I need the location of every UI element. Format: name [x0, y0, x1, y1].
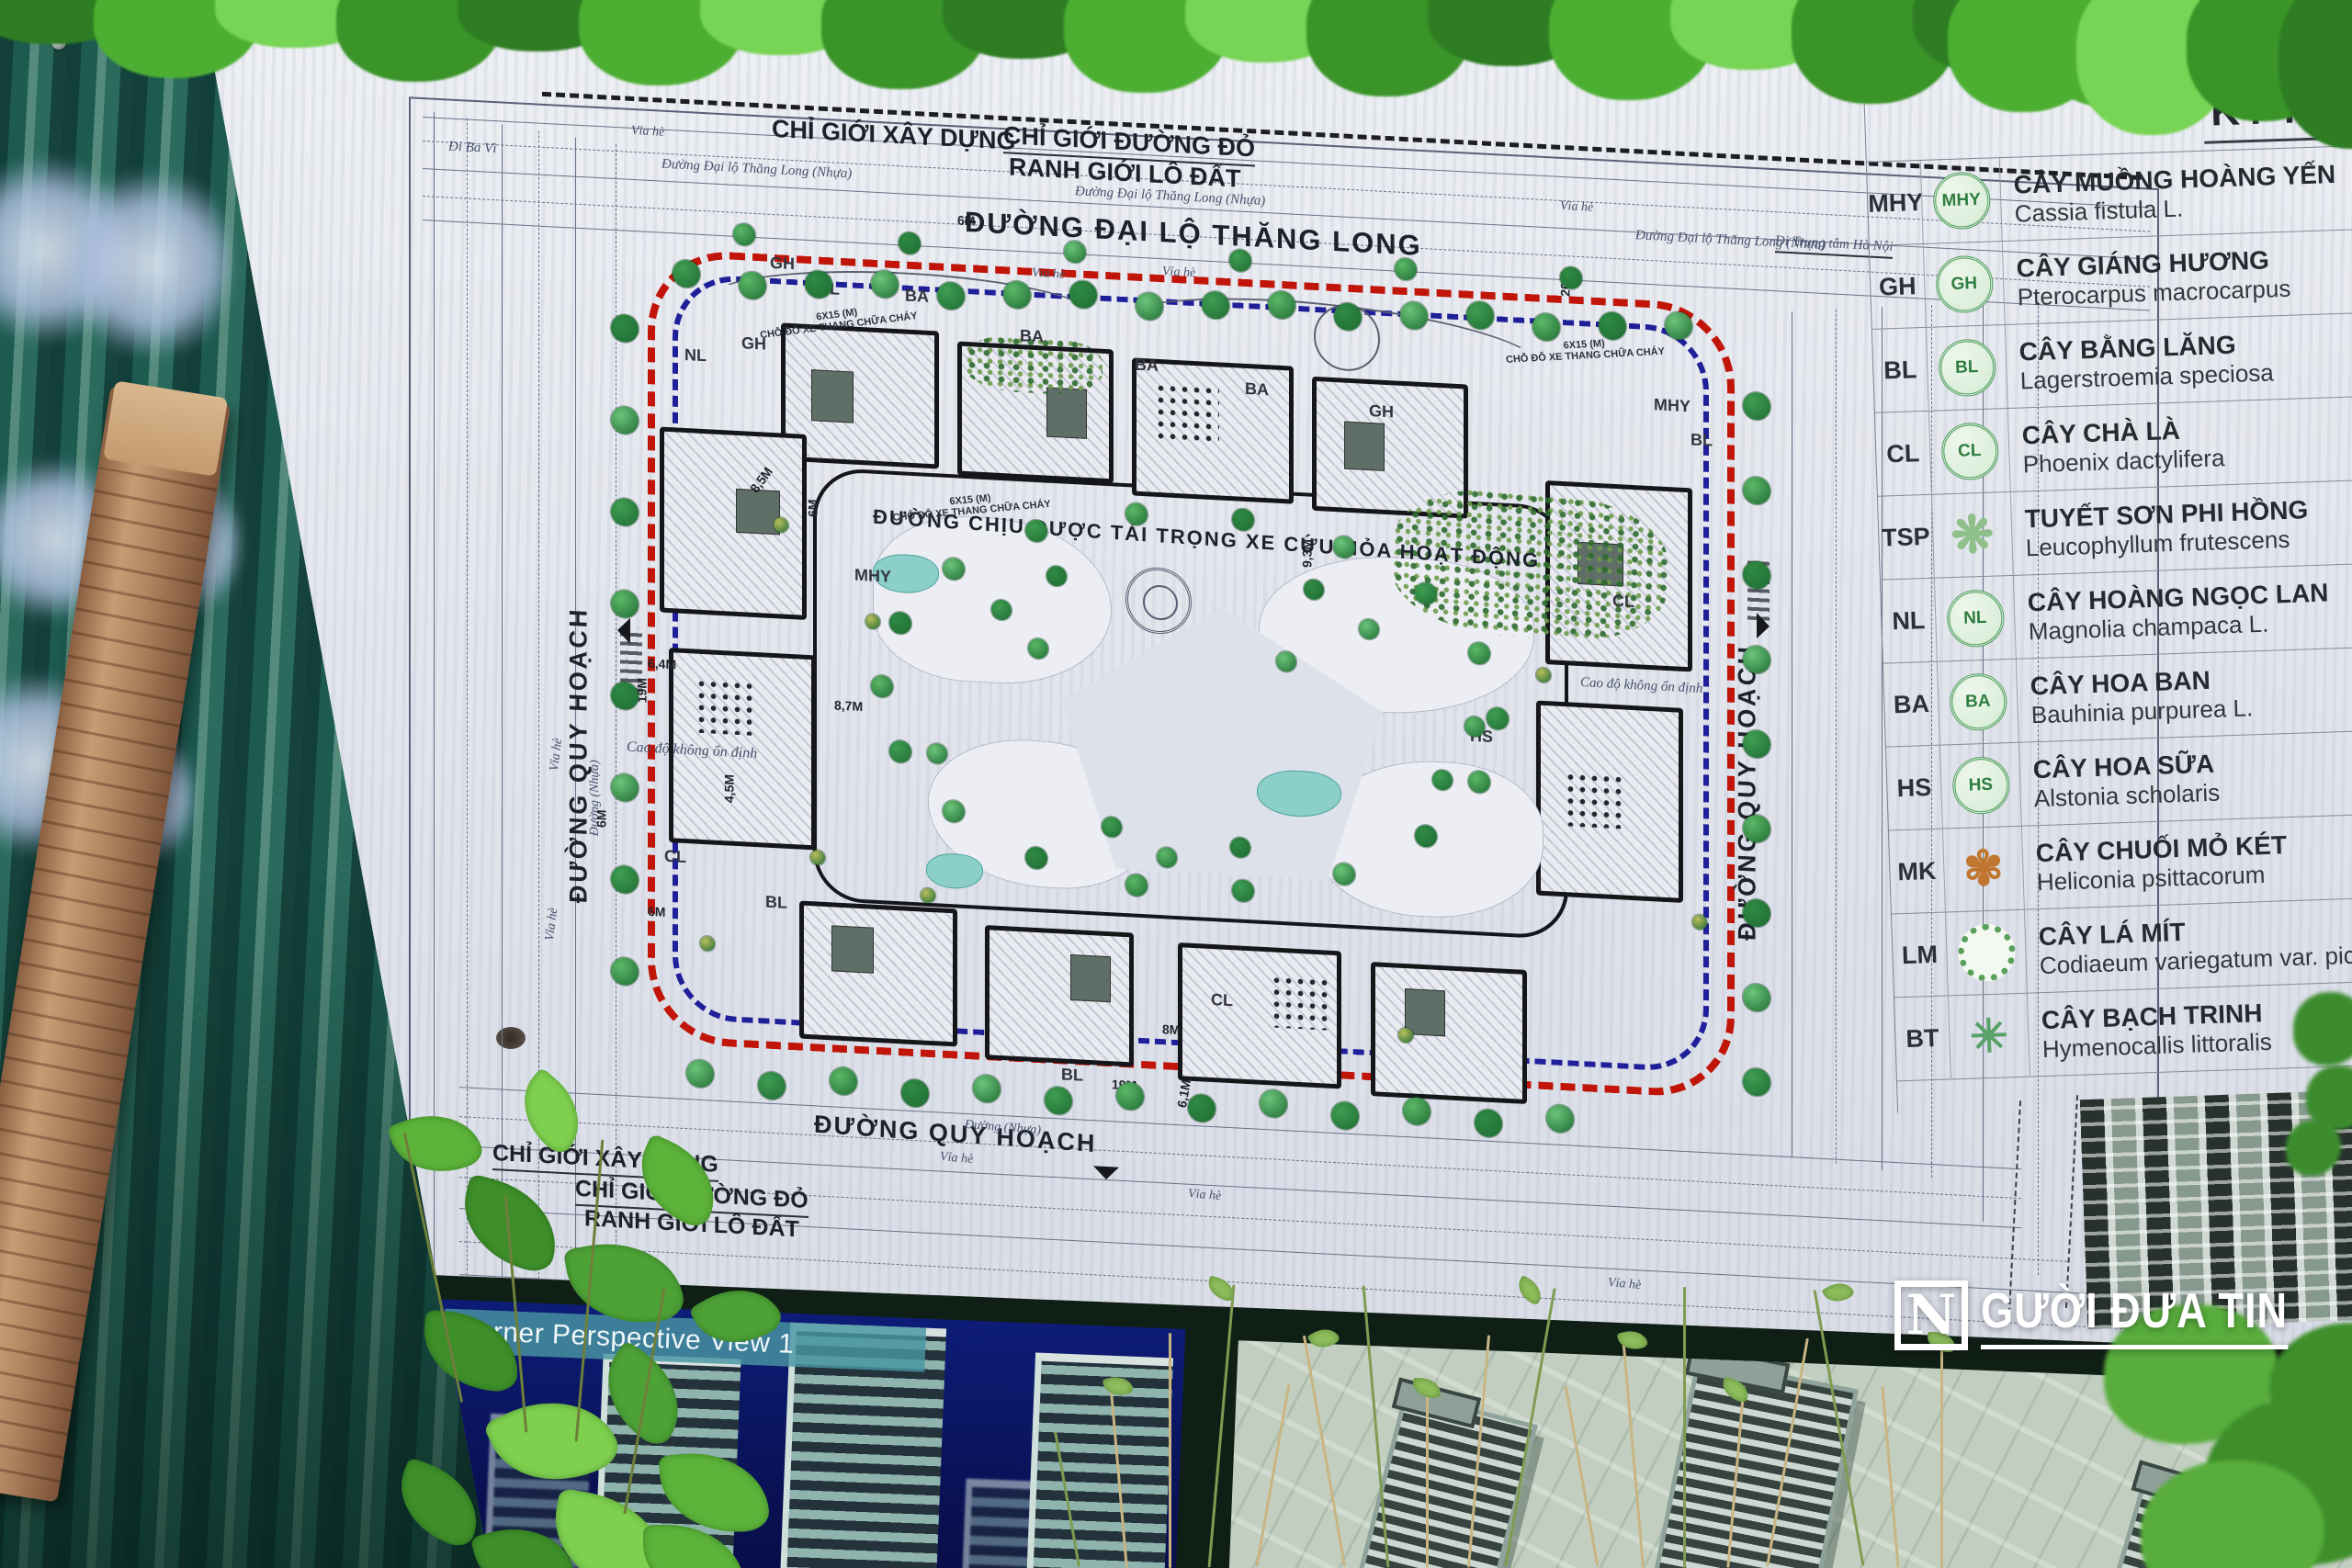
legend-code: MHY — [1868, 187, 1922, 218]
legend-title: KÝ HIỆU — [2202, 84, 2352, 144]
tree-symbol — [921, 887, 935, 903]
dimension-label: 8,7M — [834, 697, 863, 714]
tree-symbol — [937, 281, 965, 310]
building-block — [985, 925, 1134, 1066]
tree-symbol — [1260, 1089, 1287, 1119]
tree-symbol — [899, 231, 921, 254]
dimension-label: 6,4M — [648, 656, 676, 672]
render-tower — [1022, 1352, 1173, 1568]
tree-symbol — [1276, 651, 1296, 672]
tree-symbol — [830, 1066, 857, 1096]
night-render: Corner Perspective View 1 — [416, 1299, 1186, 1568]
legend-code: MK — [1890, 856, 1944, 886]
tree-code-tag: BA — [1135, 355, 1159, 376]
tree-symbol — [1304, 579, 1324, 600]
tree-symbol — [1331, 1101, 1359, 1131]
legend-code: HS — [1887, 773, 1941, 803]
tree-symbol — [1188, 1094, 1216, 1123]
tree-symbol — [1432, 770, 1453, 791]
tree-symbol — [1743, 560, 1770, 590]
tree-symbol — [1532, 312, 1560, 342]
render-caption: Corner Perspective View 1 — [457, 1315, 795, 1360]
tree-symbol — [611, 865, 639, 895]
aerial-tower — [2083, 1473, 2277, 1568]
label-planned-road-left: ĐƯỜNG QUY HOẠCH — [565, 606, 594, 904]
tree-symbol — [1743, 729, 1770, 759]
tree-symbol-icon — [1954, 840, 2013, 898]
label-sidewalk: Vỉa hè — [631, 124, 664, 141]
road-line — [434, 112, 435, 1325]
tree-symbol — [1560, 266, 1582, 289]
tree-code-tag: NL — [684, 345, 707, 366]
tree-symbol-icon: GH — [1935, 254, 1994, 313]
tree-symbol — [1045, 1086, 1072, 1115]
tree-symbol — [1003, 280, 1031, 310]
road-line — [538, 131, 539, 1316]
aerial-render — [1224, 1340, 2352, 1568]
tree-symbol — [1692, 914, 1707, 930]
tree-symbol — [1665, 311, 1692, 341]
tree-symbol-icon: BA — [1949, 672, 2007, 731]
tree-code-tag: CL — [1211, 990, 1233, 1010]
tree-symbol — [1136, 292, 1163, 321]
tree-symbol — [1546, 1104, 1574, 1134]
tree-symbol — [733, 223, 755, 246]
road-arrow — [605, 616, 630, 643]
tree-code-tag: MHY — [1654, 395, 1690, 416]
tree-symbol — [673, 259, 700, 288]
tree-symbol — [1157, 847, 1177, 868]
label-planned-road-right: ĐƯỜNG QUY HOẠCH — [1734, 644, 1762, 942]
watermark-text: GƯỜI ĐƯA TIN — [1981, 1282, 2288, 1349]
building-block — [1132, 357, 1294, 503]
tree-symbol — [1230, 837, 1250, 858]
tree-symbol — [758, 1071, 786, 1100]
tree-symbol — [1743, 645, 1770, 674]
tree-code-tag: BA — [1020, 326, 1044, 346]
render-tower — [590, 1354, 741, 1568]
tree-code-tag: GH — [741, 333, 766, 354]
tree-code-tag: CL — [1612, 592, 1634, 612]
tree-symbol — [901, 1078, 929, 1108]
tree-symbol — [1025, 846, 1047, 869]
tree-symbol — [1359, 618, 1379, 639]
tree-code-tag: BA — [905, 287, 929, 307]
tree-symbol — [1395, 257, 1417, 280]
tree-symbol — [1202, 290, 1229, 320]
tree-symbol — [1398, 1028, 1413, 1043]
tree-symbol-icon — [1957, 923, 2016, 982]
tree-symbol — [805, 270, 832, 299]
road-line — [1836, 310, 1837, 1164]
road-line — [467, 118, 468, 1322]
legend-code: BA — [1884, 689, 1939, 719]
tree-symbol — [611, 498, 639, 527]
aerial-tower — [1337, 1391, 1538, 1568]
tree-symbol — [1229, 249, 1251, 272]
tree-symbol — [611, 314, 639, 344]
tree-symbol-icon: MHY — [1932, 172, 1991, 231]
dimension-label: 4,5M — [722, 774, 737, 804]
tree-symbol — [991, 599, 1012, 620]
tree-symbol — [686, 1059, 714, 1089]
paint-splotch — [73, 158, 230, 369]
tree-symbol — [611, 773, 639, 803]
tree-symbol-icon: CL — [1940, 422, 1999, 480]
tree-code-tag: GH — [770, 254, 795, 274]
tree-symbol — [611, 590, 639, 619]
label-sidewalk: Vỉa hè — [940, 1150, 974, 1168]
legend-rows: MHYMHYCÂY MUỒNG HOÀNG YẾNCassia fistula … — [1867, 140, 2352, 1081]
tree-code-tag: GH — [1369, 401, 1394, 422]
dimension-label: 9,3M — [1300, 538, 1315, 568]
tree-symbol — [774, 517, 788, 533]
tree-symbol — [973, 1074, 1001, 1103]
tree-symbol-icon — [1943, 505, 2002, 564]
tree-symbol — [1415, 824, 1437, 847]
tree-symbol — [1028, 638, 1048, 660]
screw — [51, 35, 66, 50]
tree-symbol — [865, 614, 880, 629]
legend-code: TSP — [1879, 522, 1933, 552]
tree-symbol — [1536, 668, 1551, 683]
dimension-label: 6M — [648, 904, 665, 919]
tree-symbol — [927, 743, 947, 764]
tree-code-tag: BL — [765, 893, 787, 913]
legend-code: BT — [1895, 1023, 1950, 1054]
tree-symbol — [611, 957, 639, 987]
tree-symbol — [1400, 301, 1428, 331]
tree-symbol — [739, 271, 766, 300]
building-block — [1178, 942, 1341, 1089]
tree-symbol — [1475, 1109, 1502, 1138]
tree-symbol — [1743, 898, 1770, 928]
tree-symbol — [1046, 566, 1067, 587]
tree-symbol — [810, 850, 825, 865]
tree-symbol — [611, 682, 639, 711]
road-arrow — [1093, 1166, 1119, 1192]
legend-code: BL — [1873, 355, 1928, 385]
tree-symbol — [1466, 301, 1494, 331]
tree-symbol — [1116, 1082, 1144, 1111]
aerial-tower — [1632, 1357, 1859, 1568]
tree-symbol — [611, 406, 639, 435]
dimension-label: 6M — [806, 499, 820, 517]
tree-code-tag: BL — [1061, 1065, 1083, 1085]
tree-code-tag: CL — [664, 847, 686, 867]
tree-symbol — [1232, 879, 1254, 902]
tree-symbol — [1334, 302, 1362, 332]
label-sidewalk: Vỉa hè — [1162, 265, 1195, 281]
tree-symbol — [1743, 476, 1770, 505]
construction-billboard-photo: CHỈ GIỚI XÂY DỰNG CHỈ GIỚI ĐƯỜNG ĐỎ RANH… — [0, 0, 2352, 1568]
legend-code: NL — [1882, 605, 1936, 636]
tree-symbol — [1743, 814, 1770, 843]
tree-symbol — [1069, 280, 1097, 310]
tree-symbol-icon: HS — [1951, 756, 2010, 815]
tree-symbol — [1487, 707, 1509, 730]
building-block — [1371, 962, 1527, 1104]
tree-symbol — [1403, 1097, 1430, 1126]
tree-code-tag: BA — [1245, 379, 1269, 400]
watermark-logo: N GƯỜI ĐƯA TIN — [1894, 1280, 2346, 1350]
tree-symbol-icon: BL — [1938, 338, 1996, 397]
building-block — [799, 900, 957, 1046]
watermark-n-icon: N — [1894, 1280, 1968, 1350]
building-block — [1536, 701, 1683, 903]
label-sidewalk: Vỉa hè — [1608, 1276, 1642, 1293]
dimension-label: 8M — [1162, 1021, 1180, 1037]
tree-symbol — [1743, 391, 1770, 421]
label-sidewalk: Vỉa hè — [1560, 199, 1593, 216]
tree-symbol — [1064, 241, 1086, 264]
tree-symbol — [1268, 290, 1295, 320]
tree-symbol — [1599, 311, 1626, 341]
dimension-label: 6M — [957, 213, 975, 229]
tree-symbol — [1102, 817, 1122, 838]
label-sidewalk: Vỉa hè — [1188, 1187, 1222, 1204]
tree-symbol-icon — [1960, 1007, 2018, 1066]
road-arrow — [1757, 613, 1782, 639]
render-tower — [480, 1414, 592, 1568]
legend-code: CL — [1876, 438, 1930, 468]
legend-panel: KÝ HIỆU MHYMHYCÂY MUỒNG HOÀNG YẾNCassia … — [1863, 62, 2352, 1112]
legend-code: LM — [1893, 940, 1947, 970]
tree-code-tag: BL — [1690, 430, 1713, 450]
tree-symbol — [1743, 983, 1770, 1012]
tree-symbol — [700, 936, 715, 952]
tree-symbol — [1464, 716, 1485, 737]
tree-symbol — [871, 675, 893, 698]
label-sidewalk: Vỉa hè — [1032, 266, 1065, 283]
tree-symbol — [1743, 1067, 1770, 1097]
tree-symbol — [871, 270, 899, 299]
road-line — [1792, 311, 1792, 1156]
tree-symbol — [1125, 874, 1148, 897]
tree-symbol-icon: NL — [1946, 589, 2005, 648]
dimension-label: 6M — [594, 809, 609, 828]
legend-row: MHYMHYCÂY MUỒNG HOÀNG YẾNCassia fistula … — [1867, 141, 2352, 246]
tree-code-tag: MHY — [854, 566, 891, 587]
tree-symbol — [1333, 862, 1355, 885]
label-to-bavi: Đi Ba Vì — [448, 139, 497, 157]
legend-code: GH — [1871, 271, 1925, 301]
tree-symbol — [1468, 642, 1490, 665]
